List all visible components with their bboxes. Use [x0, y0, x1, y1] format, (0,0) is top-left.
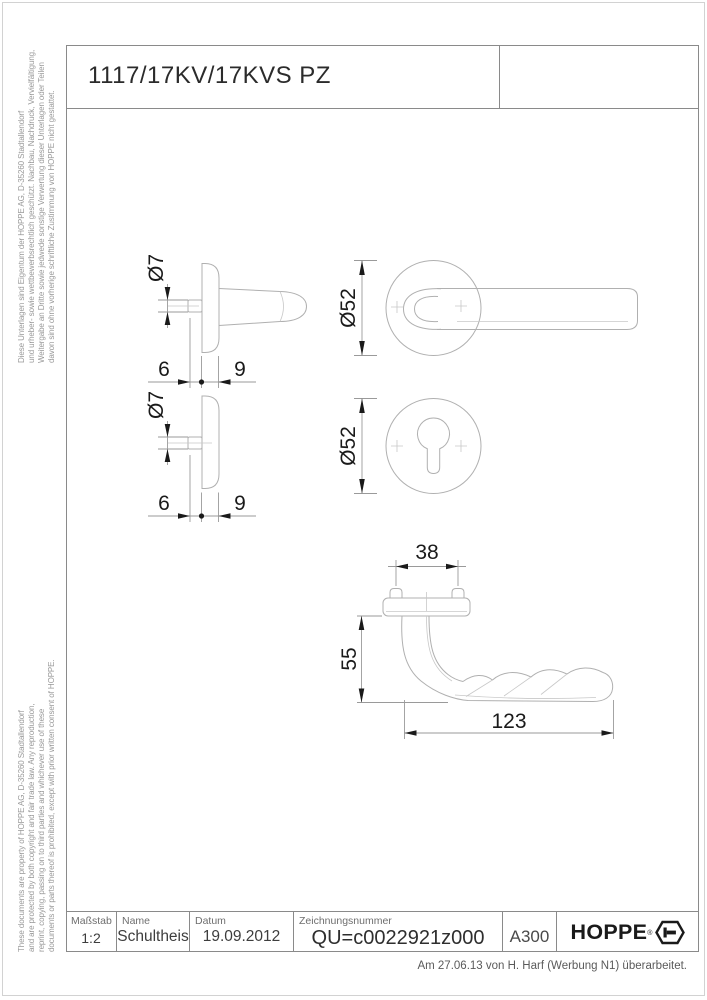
- title-block: Maßstab 1:2 Name Schultheis Datum 19.09.…: [66, 911, 699, 952]
- copyright-note-en-line-3: reprint, copying, passing on to third pa…: [37, 709, 47, 952]
- view-handle-top: 38 55 123: [338, 541, 614, 739]
- drawing-number-label: Zeichnungsnummer: [294, 912, 502, 927]
- copyright-note-en-line-2: and are protected by both copyright and …: [27, 704, 37, 952]
- copyright-note-de-line-2: und urheber- sowie wettbewerbsrechtlich …: [27, 50, 37, 363]
- title-block-cell-name: Name Schultheis: [117, 912, 190, 952]
- view-handle-front: Ø52: [337, 261, 638, 356]
- page-title: 1117/17KV/17KVS PZ: [88, 45, 331, 107]
- revision-code: A300: [503, 927, 556, 947]
- dim-label-rosette-diameter-c: Ø52: [337, 288, 360, 328]
- title-block-cell-drawing-number: Zeichnungsnummer QU=c0022921z000: [294, 912, 503, 952]
- dim-label-offset-front-a: 6: [158, 358, 170, 381]
- drawing-sheet: Diese Unterlagen sind Eigentum der HOPPE…: [0, 0, 707, 1000]
- hoppe-logo-text: HOPPE: [571, 920, 648, 945]
- name-label: Name: [117, 912, 189, 927]
- date-label: Datum: [190, 912, 293, 927]
- dim-label-handle-length: 123: [491, 710, 526, 733]
- title-block-cell-scale: Maßstab 1:2: [66, 912, 117, 952]
- title-block-cell-logo: HOPPE®: [557, 912, 699, 952]
- title-box: 1117/17KV/17KVS PZ: [66, 45, 699, 109]
- name-value: Schultheis: [117, 928, 189, 946]
- registered-trademark-mark: ®: [647, 930, 652, 937]
- dim-label-pin-diameter-a: Ø7: [145, 254, 168, 282]
- copyright-note-de-line-3: Weitergabe an Dritte sowie jedwede sonst…: [37, 62, 47, 363]
- hoppe-logo: HOPPE®: [557, 912, 699, 952]
- revision-note: Am 27.06.13 von H. Harf (Werbung N1) übe…: [417, 960, 687, 972]
- drawing-number-value: QU=c0022921z000: [294, 927, 502, 950]
- dim-label-offset-front-b: 6: [158, 492, 170, 515]
- technical-drawing: Ø7 6 9 Ø7: [66, 109, 699, 911]
- dim-label-pin-diameter-b: Ø7: [145, 391, 168, 419]
- dim-label-handle-drop: 55: [338, 647, 361, 670]
- dim-label-offset-back-b: 9: [234, 492, 246, 515]
- view-key-rosette-side: Ø7 6 9: [145, 391, 256, 522]
- copyright-note-en-line-4: documents or parts thereof is prohibited…: [47, 659, 57, 952]
- dim-label-screw-distance: 38: [415, 541, 438, 564]
- dim-label-rosette-diameter-d: Ø52: [337, 426, 360, 466]
- copyright-note-de-line-1: Diese Unterlagen sind Eigentum der HOPPE…: [17, 111, 27, 363]
- title-box-divider: [499, 45, 500, 108]
- scale-label: Maßstab: [66, 912, 116, 927]
- hoppe-hexagon-icon: [655, 920, 685, 945]
- scale-value: 1:2: [66, 930, 116, 946]
- view-key-rosette-front: Ø52: [337, 399, 481, 494]
- date-value: 19.09.2012: [190, 928, 293, 946]
- dim-label-offset-back-a: 9: [234, 358, 246, 381]
- copyright-note-en-line-1: These documents are property of HOPPE AG…: [17, 710, 27, 952]
- title-block-cell-revision: A300: [503, 912, 557, 952]
- title-block-cell-date: Datum 19.09.2012: [190, 912, 294, 952]
- view-handle-side: Ø7 6 9: [145, 254, 307, 388]
- copyright-note-de-line-4: davon sind ohne vorherige schriftliche Z…: [47, 90, 57, 363]
